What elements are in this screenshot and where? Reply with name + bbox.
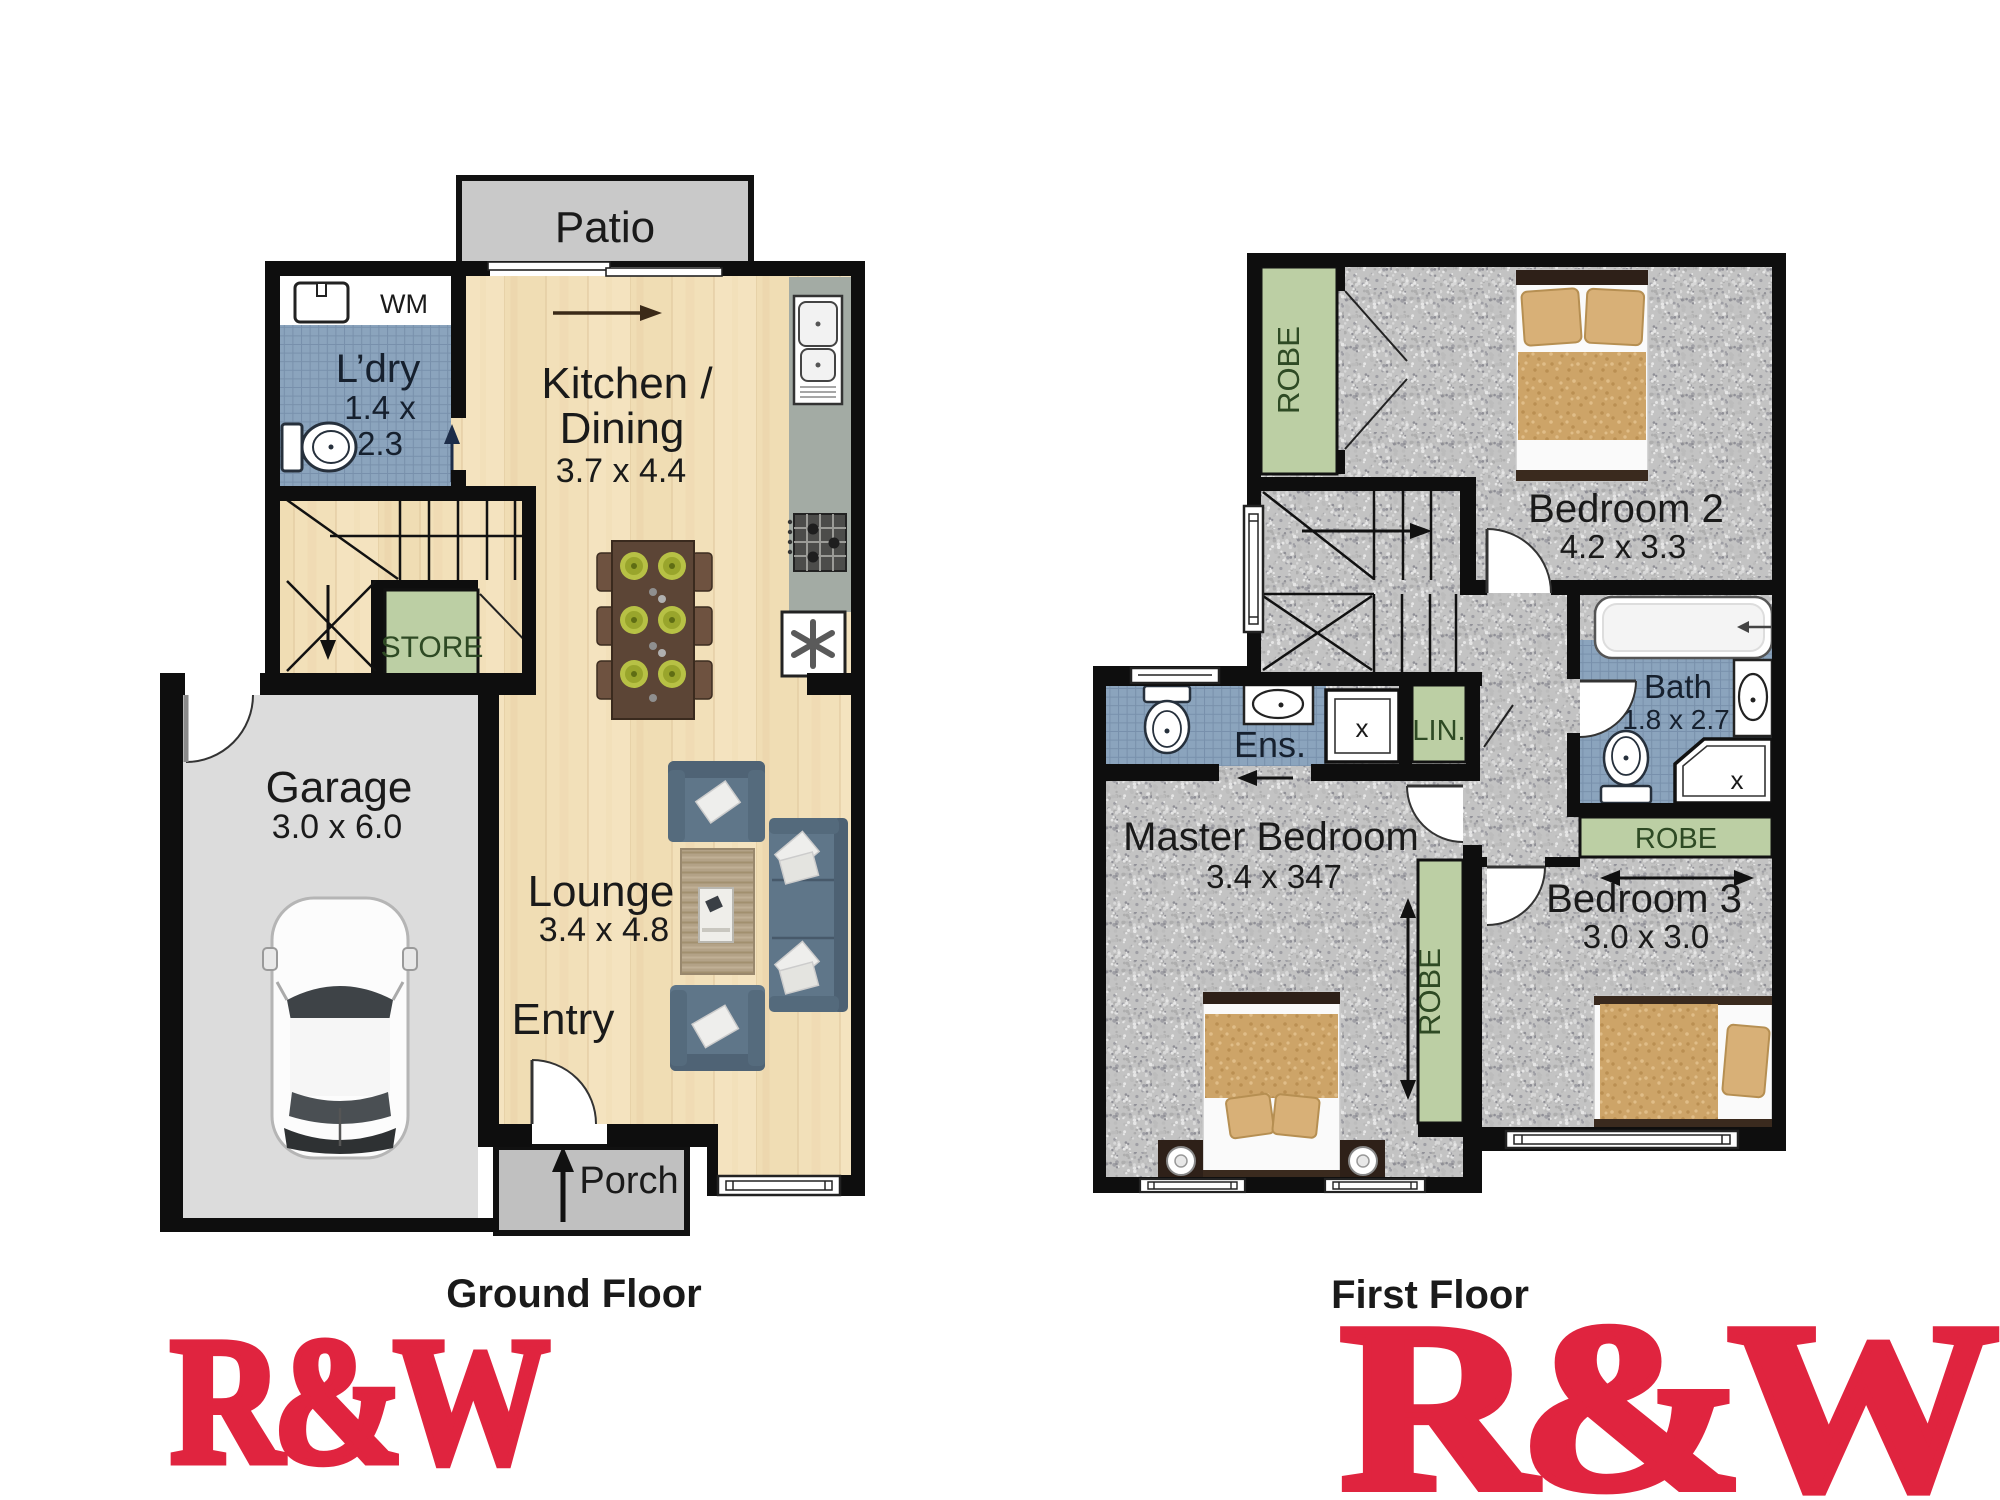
svg-text:Lounge: Lounge — [528, 867, 675, 916]
svg-text:Master Bedroom: Master Bedroom — [1123, 815, 1419, 859]
svg-text:Bedroom 2: Bedroom 2 — [1528, 487, 1724, 531]
svg-text:3.4 x 4.8: 3.4 x 4.8 — [539, 911, 669, 949]
svg-text:Entry: Entry — [512, 995, 615, 1044]
svg-text:WM: WM — [380, 289, 428, 319]
svg-text:3.7 x 4.4: 3.7 x 4.4 — [556, 452, 686, 490]
svg-text:x: x — [1356, 713, 1369, 743]
svg-text:ROBE: ROBE — [1271, 326, 1306, 414]
svg-text:STORE: STORE — [381, 631, 484, 664]
svg-text:2.3: 2.3 — [357, 425, 403, 462]
svg-text:L’dry: L’dry — [336, 347, 421, 391]
svg-text:3.0 x 3.0: 3.0 x 3.0 — [1583, 918, 1710, 955]
svg-text:3.4 x 347: 3.4 x 347 — [1206, 858, 1342, 895]
svg-text:1.8 x 2.7: 1.8 x 2.7 — [1622, 704, 1729, 735]
svg-text:3.0 x 6.0: 3.0 x 6.0 — [272, 808, 402, 846]
svg-text:Ens.: Ens. — [1234, 724, 1306, 765]
svg-text:Kitchen /: Kitchen / — [541, 359, 713, 408]
svg-text:Porch: Porch — [579, 1160, 678, 1202]
svg-text:Bath: Bath — [1644, 668, 1712, 705]
svg-text:ROBE: ROBE — [1635, 823, 1717, 855]
svg-text:Bedroom 3: Bedroom 3 — [1546, 877, 1742, 921]
svg-text:Garage: Garage — [266, 763, 413, 812]
svg-text:4.2 x 3.3: 4.2 x 3.3 — [1560, 528, 1687, 565]
svg-text:ROBE: ROBE — [1412, 948, 1447, 1036]
svg-text:1.4 x: 1.4 x — [344, 389, 416, 426]
svg-text:Patio: Patio — [555, 203, 655, 252]
svg-text:LIN.: LIN. — [1412, 715, 1465, 747]
svg-text:x: x — [1731, 765, 1744, 795]
svg-text:R&W: R&W — [170, 1300, 548, 1500]
svg-text:R&W: R&W — [1340, 1274, 1995, 1500]
svg-text:Dining: Dining — [560, 404, 685, 453]
